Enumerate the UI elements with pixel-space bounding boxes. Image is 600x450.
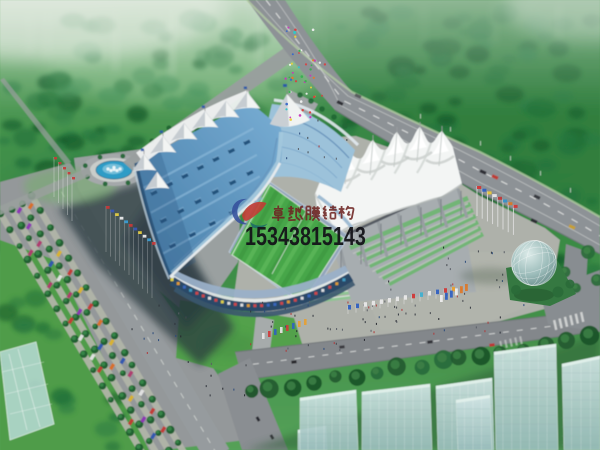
svg-text:15343815143: 15343815143: [245, 221, 366, 250]
